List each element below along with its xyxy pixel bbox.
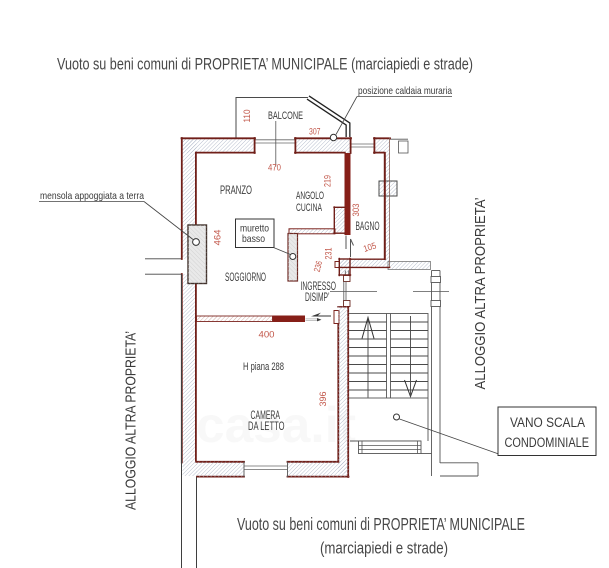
svg-text:SOGGIORNO: SOGGIORNO — [225, 270, 266, 284]
svg-text:303: 303 — [351, 204, 361, 217]
svg-text:307: 307 — [309, 127, 321, 137]
svg-text:VANO SCALA: VANO SCALA — [510, 415, 585, 430]
svg-text:basso: basso — [242, 233, 265, 245]
svg-text:219: 219 — [323, 175, 333, 187]
svg-text:DISIMP’: DISIMP’ — [305, 292, 330, 304]
svg-text:231: 231 — [324, 248, 334, 260]
svg-text:ANGOLO: ANGOLO — [296, 190, 324, 202]
svg-text:400: 400 — [259, 330, 275, 340]
svg-text:470: 470 — [268, 163, 281, 173]
svg-text:ALLOGGIO ALTRA PROPRIETA’: ALLOGGIO ALTRA PROPRIETA’ — [472, 198, 489, 390]
svg-text:464: 464 — [213, 230, 223, 246]
svg-text:BAGNO: BAGNO — [356, 221, 380, 233]
svg-text:ALLOGGIO ALTRA PROPRIETA’: ALLOGGIO ALTRA PROPRIETA’ — [123, 331, 140, 510]
svg-text:110: 110 — [242, 110, 252, 123]
svg-text:H piana 288: H piana 288 — [243, 361, 284, 373]
svg-text:CUCINA: CUCINA — [296, 202, 322, 214]
svg-text:396: 396 — [318, 392, 328, 407]
svg-text:PRANZO: PRANZO — [220, 183, 252, 197]
svg-text:Vuoto su beni comuni di PROPRI: Vuoto su beni comuni di PROPRIETA’ MUNIC… — [57, 54, 473, 73]
svg-text:CONDOMINIALE: CONDOMINIALE — [505, 435, 590, 450]
svg-text:posizione caldaia muraria: posizione caldaia muraria — [358, 85, 452, 97]
svg-text:(marciapiedi e strade): (marciapiedi e strade) — [320, 539, 448, 558]
svg-text:mensola appoggiata a terra: mensola appoggiata a terra — [40, 190, 144, 202]
svg-text:DA LETTO: DA LETTO — [248, 421, 285, 433]
svg-text:BALCONE: BALCONE — [268, 110, 303, 122]
svg-text:Vuoto su beni comuni di PROPRI: Vuoto su beni comuni di PROPRIETA’ MUNIC… — [237, 514, 525, 534]
